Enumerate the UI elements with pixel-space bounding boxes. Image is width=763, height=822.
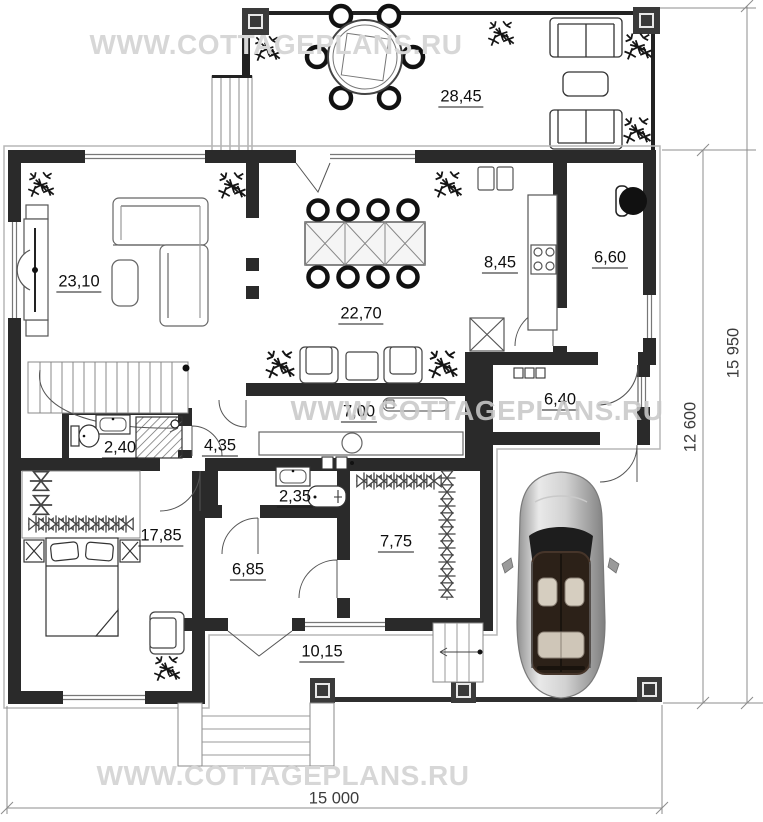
side-table-icon [346, 352, 378, 380]
stove-icon [531, 245, 556, 274]
bedroom-armchair-icon [150, 612, 184, 654]
bed-icon [24, 538, 140, 636]
terrace-sofa-icon [550, 18, 622, 57]
room-label-terrace: 28,45 [438, 88, 483, 107]
porch-column-icon [637, 677, 662, 702]
dimension-overall-width: 15 000 [309, 790, 359, 809]
room-label-dining: 22,70 [338, 305, 383, 324]
plant-icon [625, 34, 652, 60]
car-top-view-icon [502, 472, 619, 698]
vanity-sink-icon [96, 415, 130, 434]
room-label-bedroom: 17,85 [138, 527, 183, 546]
tv-unit-icon [17, 205, 48, 336]
plant-icon [429, 351, 458, 378]
bathtub-icon [308, 486, 346, 507]
room-label-living: 23,10 [56, 273, 101, 292]
watermark-bottom: WWW.COTTAGEPLANS.RU [97, 760, 470, 792]
room-label-porch: 10,15 [299, 643, 344, 662]
floor-plan-canvas: 28,45 23,10 22,70 8,45 6,60 7,00 6,40 2,… [0, 0, 763, 822]
plant-icon [624, 118, 651, 144]
plant-icon [266, 351, 295, 378]
side-steps-icon [433, 623, 483, 682]
armchair-icon [300, 347, 338, 383]
toilet-icon [71, 425, 99, 447]
terrace-sofa-icon [550, 110, 622, 149]
plant-icon [219, 173, 246, 199]
dimension-overall-height: 15 950 [725, 328, 744, 378]
plant-icon [28, 172, 54, 196]
room-label-hall: 4,35 [202, 437, 238, 456]
terrace-coffee-table-icon [563, 72, 608, 96]
bedroom-closet-icon [22, 471, 140, 538]
corner-sink-unit-icon [470, 318, 504, 351]
dining-table-icon [305, 201, 425, 287]
armchair-icon [384, 347, 422, 383]
plant-icon [488, 21, 514, 45]
sink-icon [342, 433, 362, 453]
dimension-main-height: 12 600 [682, 402, 701, 452]
terrace-steps-icon [212, 75, 252, 152]
plant-icon [435, 172, 462, 198]
room-label-bathroom: 2,35 [277, 488, 313, 507]
porch-column-icon [310, 678, 335, 703]
room-label-wc: 2,40 [102, 439, 138, 458]
coffee-table-icon [112, 260, 138, 306]
watermark-middle: WWW.COTTAGEPLANS.RU [291, 395, 664, 427]
plant-icon [154, 656, 180, 680]
vanity-sink-icon [276, 467, 310, 486]
room-label-wardrobe: 7,75 [378, 533, 414, 552]
room-label-kitchen: 8,45 [482, 254, 518, 273]
room-label-hall2: 6,85 [230, 561, 266, 580]
watermark-top: WWW.COTTAGEPLANS.RU [90, 29, 463, 61]
room-label-boiler: 6,60 [592, 249, 628, 268]
terrace-column-icon [633, 7, 660, 34]
entry-steps-icon [178, 703, 334, 766]
shower-icon [136, 417, 182, 458]
boiler-icon [616, 186, 647, 216]
